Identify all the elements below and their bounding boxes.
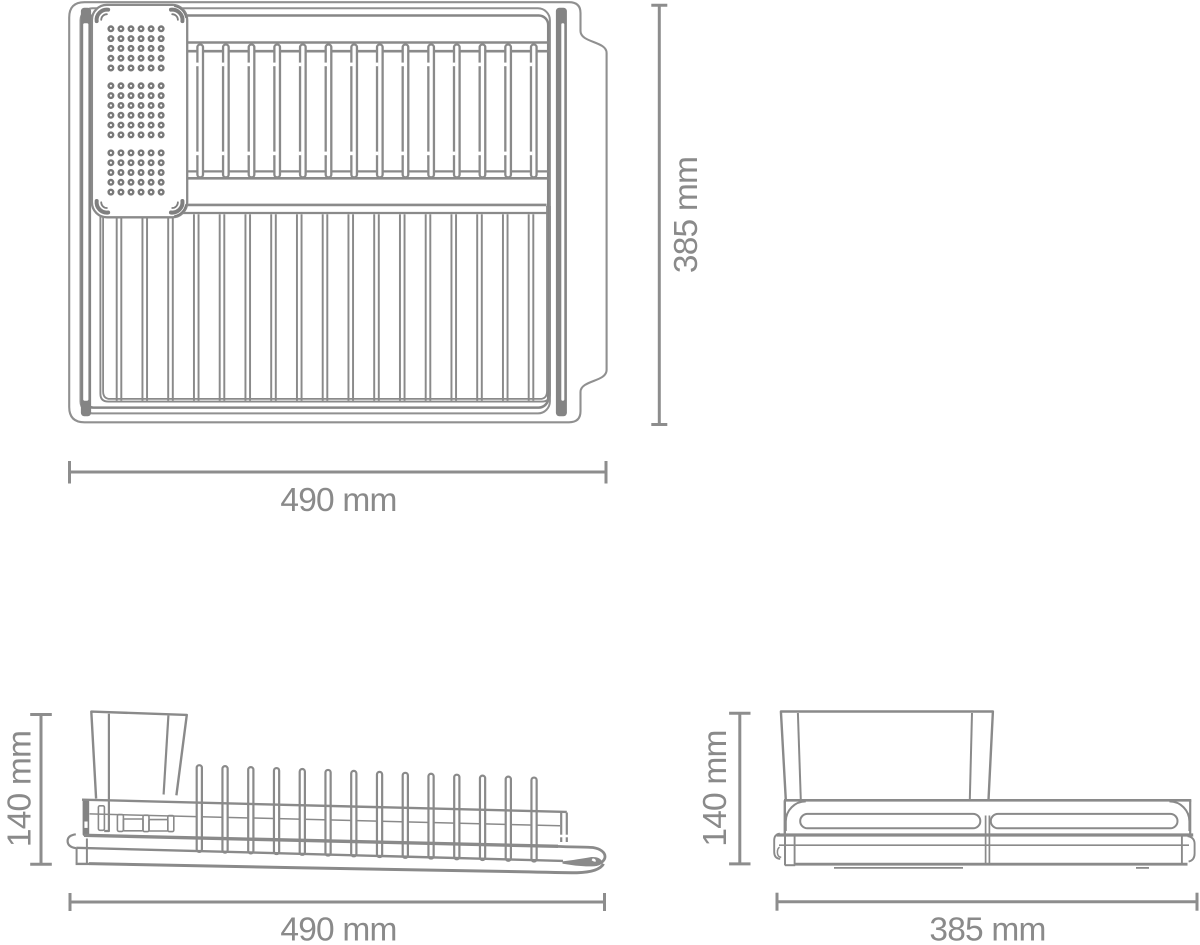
- svg-text:385 mm: 385 mm: [929, 912, 1045, 945]
- svg-text:140 mm: 140 mm: [697, 730, 734, 846]
- svg-text:140 mm: 140 mm: [2, 731, 39, 847]
- svg-text:490 mm: 490 mm: [280, 482, 396, 519]
- svg-text:385 mm: 385 mm: [668, 157, 705, 273]
- svg-text:490 mm: 490 mm: [280, 912, 396, 945]
